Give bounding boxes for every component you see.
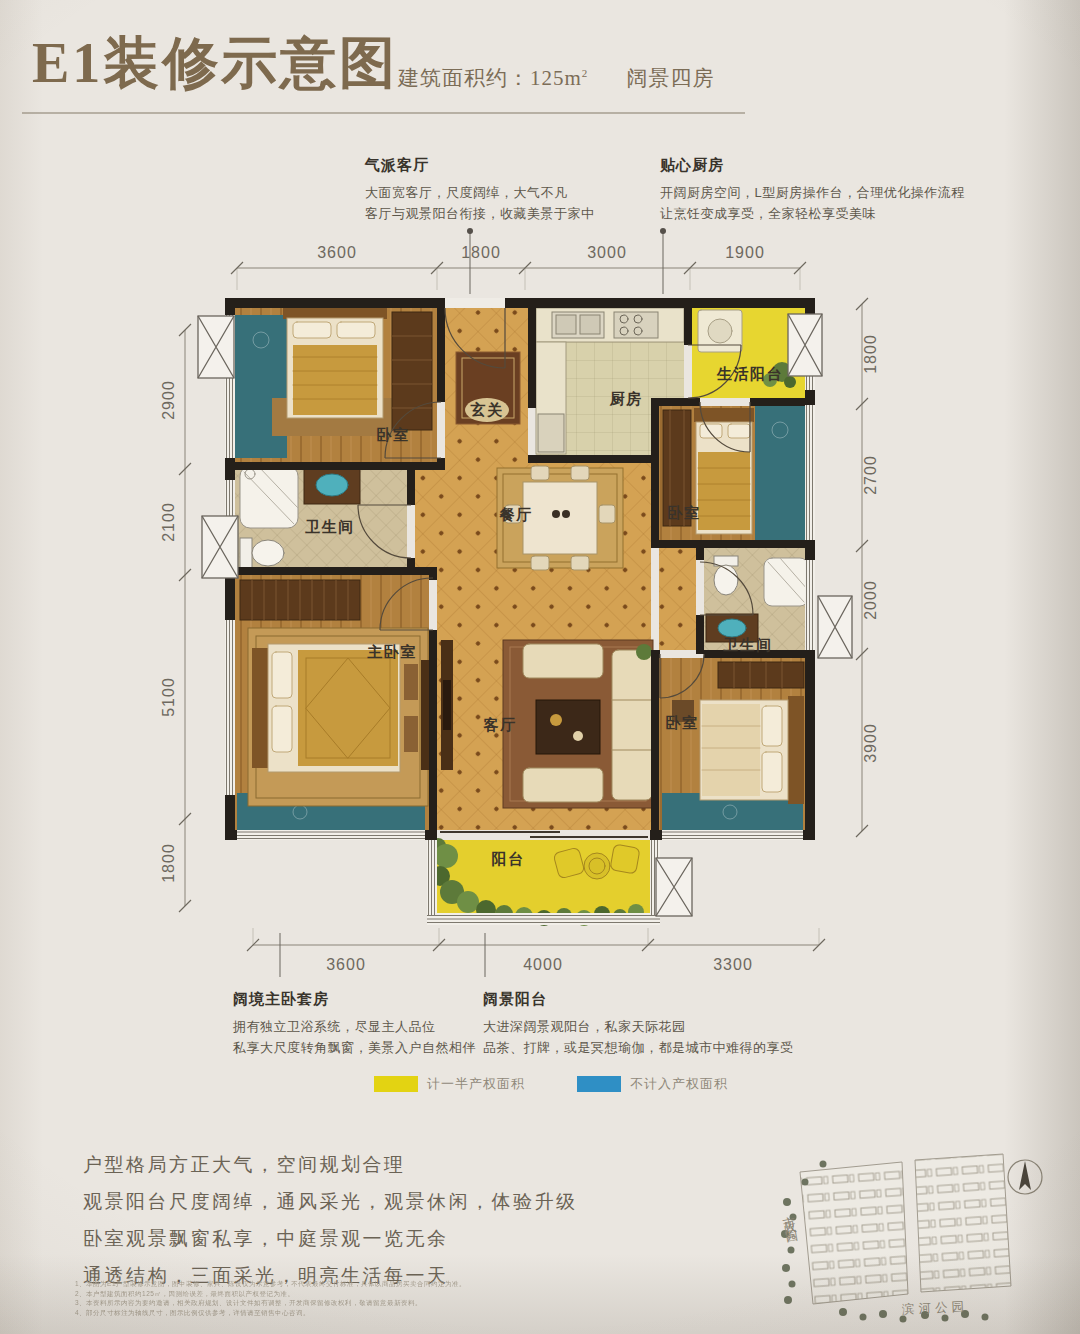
dim-bottom-2: 3300 [713, 956, 753, 973]
page-title: E1装修示意图 [32, 26, 398, 102]
annotation-balcony-title: 阔景阳台 [483, 990, 833, 1009]
room-label-bedroom-br: 卧室 [666, 714, 699, 731]
area-value: 125 [530, 66, 565, 90]
dim-top-1: 1800 [461, 244, 501, 261]
annotation-master-title: 阔境主卧套房 [233, 990, 503, 1009]
dim-right-0: 1800 [862, 334, 879, 374]
dim-bottom-0: 3600 [326, 956, 366, 973]
site-blocks [800, 1154, 1011, 1304]
room-label-entry: 玄关 [470, 401, 504, 418]
north-arrow-icon [1008, 1160, 1042, 1194]
room-label-bath-l: 卫生间 [304, 518, 355, 535]
annotation-balcony-line2: 品茶、打牌，或是冥想瑜伽，都是城市中难得的享受 [483, 1037, 833, 1058]
feature-line: 观景阳台尺度阔绰，通风采光，观景休闲，体验升级 [83, 1183, 578, 1220]
disclaimer-line: 4、部分尺寸标注为轴线尺寸，图示比例仅供参考，详情请至销售中心咨询。 [75, 1308, 785, 1318]
legend-swatch-half-area [374, 1076, 418, 1092]
disclaimer-fine-print: 1、本图为E1户型装修示意图，图中装修、家具、陈设仅为示意参考，不代表最终交付标… [75, 1279, 785, 1317]
area-sup: 2 [582, 67, 589, 79]
annotation-balcony: 阔景阳台 大进深阔景观阳台，私家天际花园 品茶、打牌，或是冥想瑜伽，都是城市中难… [483, 990, 833, 1058]
annotation-kitchen-line1: 开阔厨房空间，L型厨房操作台，合理优化操作流程 [660, 182, 990, 203]
annotation-master: 阔境主卧套房 拥有独立卫浴系统，尽显主人品位 私享大尺度转角飘窗，美景入户自然相… [233, 990, 503, 1058]
room-label-bath-r: 卫生间 [722, 636, 773, 653]
feature-line: 户型格局方正大气，空间规划合理 [83, 1146, 578, 1183]
area-legend: 计一半产权面积 不计入产权面积 [374, 1075, 728, 1093]
legend-swatch-excluded-area [577, 1076, 621, 1092]
legend-label-half-area: 计一半产权面积 [427, 1075, 525, 1093]
park-label-left: 市政公园 [777, 1205, 797, 1228]
dim-bottom-1: 4000 [523, 956, 563, 973]
annotation-living-title: 气派客厅 [365, 156, 665, 175]
annotation-living-line1: 大面宽客厅，尺度阔绰，大气不凡 [365, 182, 665, 203]
disclaimer-line: 3、本资料所示内容为要约邀请，相关政府规划、设计文件如有调整，开发商保留修改权利… [75, 1298, 785, 1308]
annotation-kitchen-line2: 让烹饪变成享受，全家轻松享受美味 [660, 203, 990, 224]
legend-label-excluded-area: 不计入产权面积 [630, 1075, 728, 1093]
dim-right-3: 3900 [862, 723, 879, 763]
subtitle: 建筑面积约：125m2 阔景四房 [398, 64, 715, 92]
annotation-balcony-line1: 大进深阔景观阳台，私家天际花园 [483, 1016, 833, 1037]
dim-left-0: 2900 [160, 380, 177, 420]
feature-line: 卧室观景飘窗私享，中庭景观一览无余 [83, 1220, 578, 1257]
annotation-living: 气派客厅 大面宽客厅，尺度阔绰，大气不凡 客厅与观景阳台衔接，收藏美景于家中 [365, 156, 665, 224]
dim-left-3: 1800 [160, 843, 177, 883]
dim-top-0: 3600 [317, 244, 357, 261]
annotation-master-line1: 拥有独立卫浴系统，尽显主人品位 [233, 1016, 503, 1037]
area-prefix: 建筑面积约： [398, 66, 530, 90]
room-label-bedroom-r: 卧室 [668, 504, 701, 521]
dim-top-3: 1900 [725, 244, 765, 261]
room-label-living: 客厅 [483, 716, 517, 733]
feature-list: 户型格局方正大气，空间规划合理 观景阳台尺度阔绰，通风采光，观景休闲，体验升级 … [83, 1146, 578, 1294]
area-unit: m [565, 66, 582, 90]
disclaimer-line: 1、本图为E1户型装修示意图，图中装修、家具、陈设仅为示意参考，不代表最终交付标… [75, 1279, 785, 1289]
dim-left-2: 5100 [160, 677, 177, 717]
annotation-living-line2: 客厅与观景阳台衔接，收藏美景于家中 [365, 203, 665, 224]
room-label-master: 主卧室 [367, 643, 417, 660]
room-label-bedroom-tl: 卧室 [377, 426, 410, 443]
brochure-page: E1装修示意图 建筑面积约：125m2 阔景四房 气派客厅 大面宽客厅，尺度阔绰… [0, 0, 1080, 1334]
dim-right-1: 2700 [862, 455, 879, 495]
room-label-kitchen: 厨房 [609, 390, 643, 407]
floor-plan: 3600 1800 3000 1900 2900 2100 5100 1800 … [140, 222, 930, 977]
annotation-kitchen-title: 贴心厨房 [660, 156, 990, 175]
layout-tag: 阔景四房 [627, 66, 715, 90]
dim-left-1: 2100 [160, 502, 177, 542]
disclaimer-line: 2、本户型建筑面积约125㎡，因测绘误差，最终面积以产权登记为准。 [75, 1289, 785, 1299]
park-label-bottom: 滨河公园 [902, 1298, 969, 1318]
dim-top-2: 3000 [587, 244, 627, 261]
room-label-balcony: 阳台 [492, 850, 525, 867]
room-label-dining: 餐厅 [499, 506, 533, 523]
annotation-master-line2: 私享大尺度转角飘窗，美景入户自然相伴 [233, 1037, 503, 1058]
site-location-map [775, 1142, 1075, 1327]
dim-right-2: 2000 [862, 580, 879, 620]
title-divider [22, 112, 745, 114]
room-label-service-balcony: 生活阳台 [716, 365, 783, 382]
annotation-kitchen: 贴心厨房 开阔厨房空间，L型厨房操作台，合理优化操作流程 让烹饪变成享受，全家轻… [660, 156, 990, 224]
